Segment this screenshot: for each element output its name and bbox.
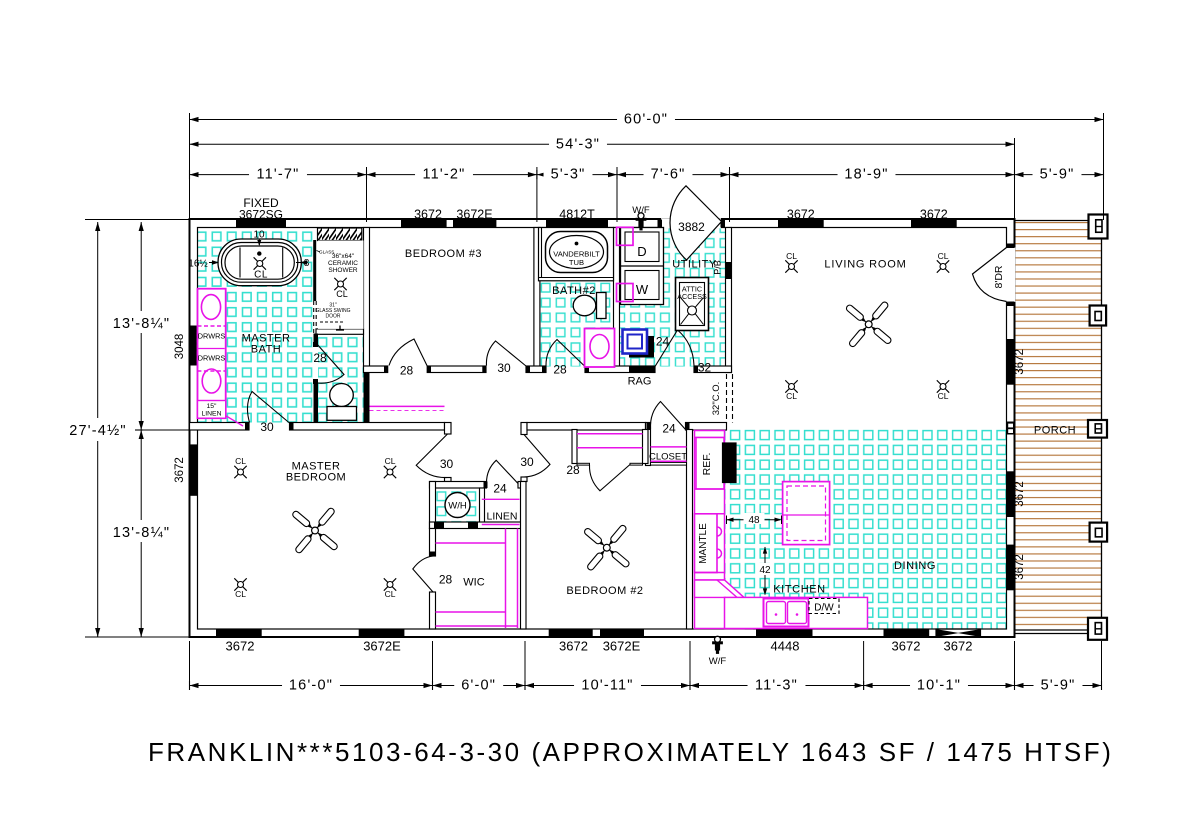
- svg-text:BEDROOM: BEDROOM: [286, 472, 346, 484]
- svg-text:5'-9": 5'-9": [1040, 167, 1075, 183]
- svg-text:REF.: REF.: [701, 453, 713, 476]
- svg-text:TUB: TUB: [569, 258, 584, 267]
- svg-text:3672E: 3672E: [456, 208, 492, 222]
- svg-text:7'-6": 7'-6": [651, 167, 686, 183]
- svg-text:GLASS: GLASS: [319, 250, 334, 255]
- svg-text:DRWRS: DRWRS: [198, 354, 226, 363]
- svg-text:30: 30: [497, 361, 511, 375]
- svg-text:30: 30: [440, 457, 454, 471]
- svg-text:3672: 3672: [226, 639, 255, 654]
- svg-text:8'DR: 8'DR: [993, 265, 1005, 288]
- svg-text:10'-1": 10'-1": [917, 678, 961, 694]
- svg-text:11'-2": 11'-2": [422, 167, 465, 183]
- svg-text:LIVING ROOM: LIVING ROOM: [824, 259, 906, 271]
- svg-text:4812T: 4812T: [559, 208, 595, 222]
- svg-text:FRANKLIN***5103-64-3-30 (APPRO: FRANKLIN***5103-64-3-30 (APPROXIMATELY 1…: [148, 737, 1113, 767]
- svg-text:KITCHEN: KITCHEN: [773, 584, 825, 596]
- svg-text:30: 30: [520, 455, 534, 469]
- svg-text:3672: 3672: [892, 639, 921, 654]
- svg-text:30: 30: [260, 420, 274, 434]
- svg-text:13'-8¼": 13'-8¼": [113, 316, 170, 332]
- svg-text:28: 28: [439, 573, 453, 587]
- svg-text:10'-11": 10'-11": [581, 678, 633, 694]
- svg-text:13'-8¼": 13'-8¼": [113, 525, 170, 541]
- svg-text:3672: 3672: [414, 208, 442, 222]
- svg-text:CL: CL: [938, 391, 949, 401]
- svg-text:24: 24: [493, 482, 507, 496]
- svg-text:MANTLE: MANTLE: [698, 523, 709, 564]
- svg-text:4448: 4448: [771, 639, 800, 654]
- svg-text:28: 28: [400, 364, 414, 378]
- svg-text:3672: 3672: [944, 639, 973, 654]
- svg-text:32"C.O.: 32"C.O.: [711, 382, 722, 415]
- svg-text:CL: CL: [786, 251, 797, 261]
- svg-text:54'-3": 54'-3": [556, 136, 600, 152]
- svg-text:48: 48: [748, 515, 760, 526]
- svg-text:DRWRS: DRWRS: [198, 332, 226, 341]
- svg-text:BEDROOM #3: BEDROOM #3: [405, 248, 482, 260]
- svg-text:16½: 16½: [188, 259, 208, 270]
- svg-text:18'-9": 18'-9": [844, 167, 888, 183]
- svg-text:5'-9": 5'-9": [1041, 678, 1076, 694]
- svg-text:42: 42: [759, 565, 771, 576]
- svg-text:CERAMIC: CERAMIC: [328, 260, 358, 267]
- svg-text:10: 10: [253, 230, 265, 241]
- svg-text:28: 28: [553, 363, 567, 377]
- svg-text:W: W: [636, 282, 649, 297]
- svg-text:D: D: [637, 244, 646, 259]
- svg-text:24: 24: [662, 422, 676, 436]
- svg-text:SHOWER: SHOWER: [328, 267, 358, 274]
- svg-text:28: 28: [313, 351, 327, 365]
- svg-text:24: 24: [656, 335, 670, 349]
- svg-text:3672: 3672: [559, 639, 588, 654]
- svg-text:PORCH: PORCH: [1034, 425, 1076, 437]
- svg-text:16'-0": 16'-0": [289, 678, 333, 694]
- svg-text:6'-0": 6'-0": [461, 678, 496, 694]
- svg-text:3672: 3672: [920, 208, 948, 222]
- svg-text:3672: 3672: [1014, 349, 1026, 375]
- svg-text:P/B: P/B: [713, 260, 723, 275]
- svg-text:DINING: DINING: [894, 560, 936, 572]
- svg-text:BEDROOM #2: BEDROOM #2: [566, 585, 643, 597]
- svg-text:3672: 3672: [1014, 481, 1026, 507]
- svg-text:3672: 3672: [174, 457, 186, 483]
- svg-text:3672E: 3672E: [603, 639, 641, 654]
- svg-text:32: 32: [698, 361, 712, 375]
- svg-text:3672: 3672: [1014, 554, 1026, 580]
- svg-text:CL: CL: [235, 589, 246, 599]
- svg-text:CL: CL: [385, 456, 396, 466]
- svg-text:BATH: BATH: [251, 344, 282, 356]
- svg-text:DOOR: DOOR: [326, 314, 341, 320]
- svg-text:5'-3": 5'-3": [551, 167, 586, 183]
- svg-text:15": 15": [207, 403, 218, 410]
- svg-text:D/W: D/W: [814, 603, 834, 614]
- svg-text:11'-3": 11'-3": [755, 678, 798, 694]
- svg-text:W/H: W/H: [448, 501, 467, 512]
- svg-text:CL: CL: [254, 270, 268, 281]
- svg-text:UTILITY: UTILITY: [672, 259, 717, 271]
- svg-text:60'-0": 60'-0": [624, 112, 668, 128]
- svg-text:CL: CL: [938, 251, 949, 261]
- svg-text:CL: CL: [336, 289, 348, 299]
- svg-text:3672E: 3672E: [363, 639, 401, 654]
- svg-text:CLOSET: CLOSET: [649, 452, 687, 463]
- svg-text:36"x64": 36"x64": [332, 253, 355, 260]
- svg-text:WIC: WIC: [463, 577, 484, 589]
- svg-text:CL: CL: [235, 456, 246, 466]
- svg-text:3048: 3048: [174, 334, 186, 360]
- svg-text:3672: 3672: [787, 208, 815, 222]
- svg-text:RAG: RAG: [628, 376, 652, 388]
- svg-text:W/F: W/F: [709, 656, 727, 667]
- svg-text:CL: CL: [385, 589, 396, 599]
- svg-text:28: 28: [566, 463, 580, 477]
- svg-text:11'-7": 11'-7": [256, 167, 299, 183]
- svg-text:3672SG: 3672SG: [239, 208, 283, 222]
- svg-text:BATH#2: BATH#2: [552, 285, 596, 297]
- svg-text:CL: CL: [786, 391, 797, 401]
- svg-text:LINEN: LINEN: [487, 511, 518, 523]
- svg-text:LINEN: LINEN: [201, 411, 221, 418]
- svg-text:3882: 3882: [678, 220, 705, 234]
- svg-text:27'-4½": 27'-4½": [69, 423, 126, 439]
